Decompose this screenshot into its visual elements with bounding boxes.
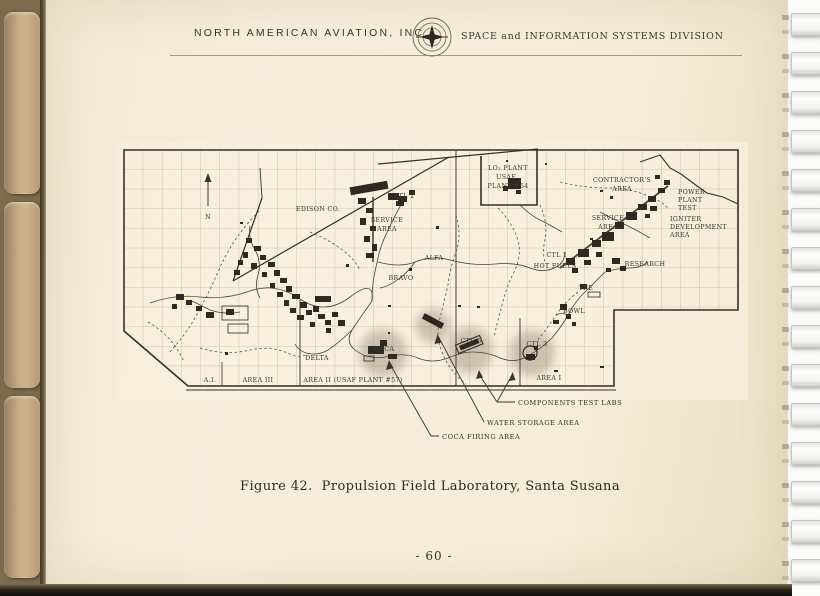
label-ctl3: CTL 3 <box>527 341 548 348</box>
binding-loop <box>791 208 820 231</box>
site-map-figure: N EDISON CO. CTL 2 SERVICE AREA LO₂ PLAN… <box>0 0 820 596</box>
label-igniter-3: AREA <box>669 232 690 239</box>
binding-loop <box>791 13 820 36</box>
label-lo2-plant: LO₂ PLANT <box>488 165 528 172</box>
label-bowl: BOWL <box>563 308 585 315</box>
label-area-ii: AREA II (USAF PLANT #57) <box>302 377 402 384</box>
label-delta: DELTA <box>305 355 329 362</box>
label-a1: A.I. <box>203 377 216 384</box>
scanned-report-page: { "header": { "company": "NORTH AMERICAN… <box>0 0 820 596</box>
binding-loop <box>791 481 820 504</box>
label-igniter-2: DEVELOPMENT <box>670 224 727 231</box>
label-area-i: AREA I <box>535 375 561 382</box>
label-hot-fuels: HOT FUELS <box>534 263 577 270</box>
ctl3-highlight <box>509 330 555 376</box>
binding-loop <box>791 442 820 465</box>
water-storage-highlight <box>416 309 450 343</box>
binding-loop <box>791 364 820 387</box>
label-service-west: SERVICE <box>371 217 403 224</box>
label-service-west-2: AREA <box>376 226 397 233</box>
binding-loop <box>791 247 820 270</box>
comb-binding <box>788 0 820 596</box>
binding-loop <box>791 559 820 582</box>
label-tre: TRE <box>579 285 594 292</box>
label-ctl5: CTL 5 <box>461 338 482 345</box>
callout-components-test-labs: COMPONENTS TEST LABS <box>518 399 622 407</box>
label-bravo: BRAVO <box>389 275 414 282</box>
label-power-2: PLANT <box>678 197 703 204</box>
binding-loop <box>791 286 820 309</box>
label-power-plant-test: POWER <box>678 189 705 196</box>
binding-loop <box>791 91 820 114</box>
label-service-east: SERVICE <box>592 215 624 222</box>
binding-loop <box>791 52 820 75</box>
callout-coca-firing-area: COCA FIRING AREA <box>442 433 520 441</box>
callout-water-storage-area: WATER STORAGE AREA <box>487 419 580 427</box>
label-igniter: IGNITER <box>670 216 702 223</box>
page-number: - 60 - <box>384 549 484 563</box>
binding-loop <box>791 520 820 543</box>
label-power-3: TEST <box>678 205 697 212</box>
label-ctl2: CTL 2 <box>394 193 415 200</box>
label-alfa: ALFA <box>424 255 444 262</box>
north-label: N <box>205 214 211 221</box>
callout-labels: COMPONENTS TEST LABS WATER STORAGE AREA … <box>442 399 622 441</box>
label-contractors-2: AREA <box>611 186 632 193</box>
label-service-east-2: AREA <box>597 224 618 231</box>
figure-caption: Figure 42. Propulsion Field Laboratory, … <box>230 479 630 494</box>
binding-loop <box>791 325 820 348</box>
binding-loop <box>791 169 820 192</box>
label-lo2-plant64: PLANT #64 <box>487 183 528 190</box>
label-ctl1: CTL 1 <box>547 252 568 259</box>
label-research: RESEARCH <box>625 261 666 268</box>
binding-loop <box>791 130 820 153</box>
label-contractors: CONTRACTOR'S <box>593 177 651 184</box>
scan-bottom-edge <box>0 584 792 596</box>
label-edison: EDISON CO. <box>296 206 340 213</box>
label-area-iii: AREA III <box>242 377 274 384</box>
binding-loop <box>791 403 820 426</box>
label-coca: COCA <box>374 346 395 353</box>
label-lo2-usaf: USAF <box>496 174 516 181</box>
